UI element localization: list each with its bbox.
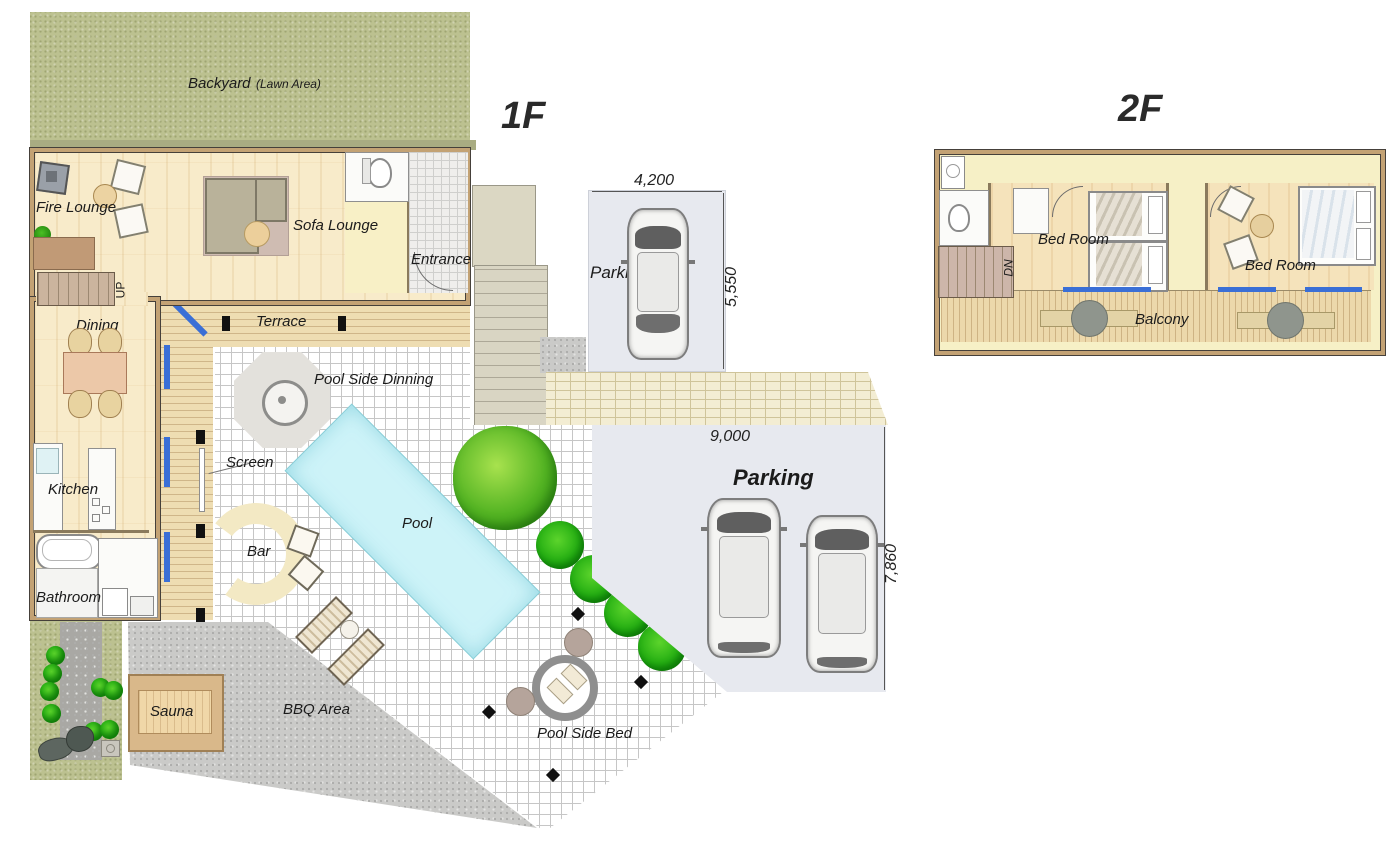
bathroom-label: Bathroom: [36, 590, 101, 605]
bathroom-wall: [33, 530, 149, 533]
side-table: [564, 628, 593, 657]
van-mirror: [800, 543, 807, 547]
bathtub-inner: [42, 539, 92, 561]
window-strip-2f: [1218, 287, 1276, 292]
fire-lounge-label: Fire Lounge: [36, 200, 116, 215]
fountain-center: [278, 396, 286, 404]
stairs-up-label: UP: [114, 282, 126, 299]
garden-bush: [46, 646, 65, 665]
car-roof: [637, 252, 679, 312]
deck-post: [196, 430, 205, 444]
vanity-icon: [130, 596, 154, 616]
floor2-title: 2F: [1118, 88, 1162, 131]
balcony-label: Balcony: [1135, 312, 1188, 327]
bedroom-left-label: Bed Room: [1038, 232, 1109, 247]
window-strip: [164, 437, 170, 487]
dining-chair: [98, 390, 122, 418]
backyard-sublabel: (Lawn Area): [256, 78, 321, 90]
round-table: [1250, 214, 1274, 238]
twin-bed-blanket: [1096, 243, 1142, 286]
toilet-icon: [368, 158, 392, 188]
toilet-tank: [362, 158, 371, 184]
hallway-floor: [345, 200, 407, 293]
fountain-ring: [262, 380, 308, 426]
car-mirror: [688, 260, 695, 264]
balcony-table: [1071, 300, 1108, 337]
van-rear-window: [718, 642, 770, 653]
gravel-patch: [540, 337, 586, 373]
backyard-label: Backyard: [188, 76, 251, 91]
dining-chair: [68, 390, 92, 418]
parking-double-width-dim: 9,000: [710, 428, 750, 446]
terrace-label: Terrace: [256, 314, 306, 329]
window-strip: [164, 345, 170, 389]
car-mirror: [621, 260, 628, 264]
stairs-down-label: DN: [1003, 259, 1015, 276]
sofa-chaise: [255, 178, 287, 222]
car-icon: [627, 208, 689, 360]
side-table: [506, 687, 535, 716]
van-mirror: [701, 527, 708, 531]
sofa-lounge-label: Sofa Lounge: [293, 218, 378, 233]
kitchen-label: Kitchen: [48, 482, 98, 497]
van-roof: [818, 553, 867, 634]
van-icon: [806, 515, 878, 673]
stove-burner: [92, 498, 100, 506]
floor-plan-canvas: Backyard (Lawn Area) BBQ Area Sauna Terr…: [0, 0, 1400, 859]
window-strip-2f: [1063, 287, 1151, 292]
van-icon: [707, 498, 781, 658]
van-rear-window: [817, 657, 867, 668]
toilet-icon-2f: [948, 204, 970, 232]
entry-steps: [474, 265, 548, 427]
floor1-title: 1F: [501, 95, 545, 138]
window-strip: [164, 532, 170, 582]
deck-post: [196, 608, 205, 622]
deck-post: [222, 316, 230, 331]
washer-icon: [102, 588, 128, 616]
console-table: [33, 237, 95, 270]
parking-single-width-dim: 4,200: [634, 172, 674, 190]
car-rear-window: [636, 314, 679, 332]
deck-post: [196, 524, 205, 538]
garden-bush: [42, 704, 61, 723]
pool-label: Pool: [402, 516, 432, 531]
bed-pillow: [1356, 191, 1371, 223]
parking-single-depth-dim: 5,550: [723, 267, 741, 307]
twin-bed-blanket: [1096, 193, 1142, 236]
lounger-table: [340, 620, 359, 639]
fireplace-core: [46, 171, 57, 182]
stove-burner: [92, 514, 100, 522]
bedroom-right-label: Bed Room: [1245, 258, 1316, 273]
screen-panel: [199, 448, 205, 512]
screen-label: Screen: [226, 455, 274, 470]
stairs-up: [37, 272, 115, 306]
entrance-label: Entrance: [411, 252, 471, 267]
pool-side-dining-label: Pool Side Dinning: [314, 372, 433, 387]
tree-icon: [453, 426, 557, 530]
bed-pillow: [1356, 228, 1371, 260]
parking-double-depth-dim: 7,860: [883, 544, 901, 584]
van-mirror: [877, 543, 884, 547]
deck-post: [338, 316, 346, 331]
garden-pad-dot: [106, 744, 115, 753]
dining-table: [63, 352, 127, 394]
sofa-side-table: [244, 221, 270, 247]
lounge-chair: [113, 203, 149, 239]
bbq-area-label: BBQ Area: [283, 702, 350, 717]
bed-pillow: [1148, 196, 1163, 234]
basin-bowl: [946, 164, 960, 178]
entry-porch: [472, 185, 536, 267]
pool-side-bed-label: Pool Side Bed: [537, 726, 632, 741]
van-windshield: [717, 512, 772, 533]
garden-bush: [104, 681, 123, 700]
garden-bush: [40, 682, 59, 701]
van-mirror: [780, 527, 787, 531]
kitchen-sink: [36, 448, 59, 474]
balcony-table: [1267, 302, 1304, 339]
double-bed-blanket: [1302, 190, 1354, 258]
garden-bush: [43, 664, 62, 683]
sauna-label: Sauna: [150, 704, 193, 719]
window-strip-2f: [1305, 287, 1362, 292]
van-roof: [719, 536, 769, 618]
dim-line-top: [592, 191, 722, 192]
parking-double-label: Parking: [733, 467, 814, 489]
car-windshield: [635, 226, 681, 249]
stove-burner: [102, 506, 110, 514]
bed-pillow: [1148, 246, 1163, 284]
bar-label: Bar: [247, 544, 270, 559]
van-windshield: [815, 529, 868, 550]
garden-bush: [100, 720, 119, 739]
closet: [1013, 188, 1049, 234]
